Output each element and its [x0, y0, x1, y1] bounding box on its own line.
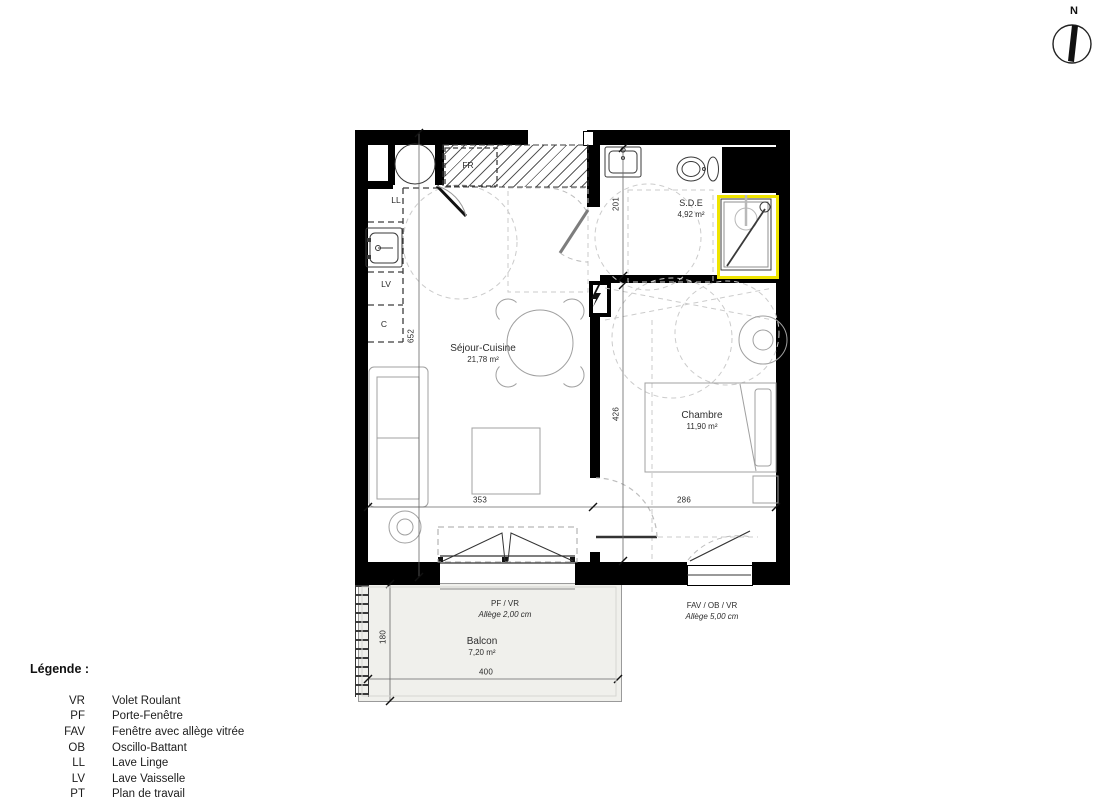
room-label-sejour: Séjour-Cuisine 21,78 m²	[450, 343, 516, 365]
room-label-sde: S.D.E 4,92 m²	[677, 198, 704, 220]
legend: Légende : VR Volet Roulant PF Porte-Fenê…	[30, 662, 244, 800]
floor-plan-canvas: N FR LL LV C Séjour-Cuisine 21,78 m² Cha…	[0, 0, 1107, 800]
legend-item: VR Volet Roulant	[30, 693, 244, 709]
counter-outlines	[368, 145, 588, 342]
cupboard-label: C	[381, 319, 387, 329]
legend-item: PT Plan de travail	[30, 787, 244, 800]
fav-window-label: FAV / OB / VR Allège 5,00 cm	[686, 600, 739, 622]
dim-chambre-width: 286	[677, 496, 691, 505]
legend-item: FAV Fenêtre avec allège vitrée	[30, 724, 244, 740]
dim-balcon-width: 400	[479, 668, 493, 677]
dashed-guides	[403, 184, 779, 560]
room-label-chambre: Chambre 11,90 m²	[681, 410, 722, 432]
north-label: N	[1070, 5, 1078, 17]
dim-chambre-height: 426	[612, 407, 621, 421]
dim-sde-height: 201	[612, 197, 621, 211]
room-label-balcon: Balcon 7,20 m²	[467, 636, 498, 658]
legend-item: OB Oscillo-Battant	[30, 740, 244, 756]
legend-item: LV Lave Vaisselle	[30, 771, 244, 787]
dim-sejour-height: 652	[407, 329, 416, 343]
legend-title: Légende :	[30, 662, 244, 676]
compass	[1047, 16, 1099, 72]
compass-needle	[1068, 25, 1078, 62]
lightning-bolt-icon	[591, 285, 601, 307]
legend-item: LL Lave Linge	[30, 755, 244, 771]
furniture-sejour	[369, 299, 584, 543]
legend-item: PF Porte-Fenêtre	[30, 709, 244, 725]
pf-window-label: PF / VR Allège 2,00 cm	[479, 598, 532, 620]
fridge-label: FR	[461, 160, 474, 170]
windows	[438, 527, 751, 589]
dim-balcon-depth: 180	[379, 630, 388, 644]
dishwasher-label: LV	[381, 279, 391, 289]
washing-machine-label: LL	[391, 195, 400, 205]
kitchen-fixtures	[366, 144, 435, 267]
dim-sejour-width: 353	[473, 496, 487, 505]
